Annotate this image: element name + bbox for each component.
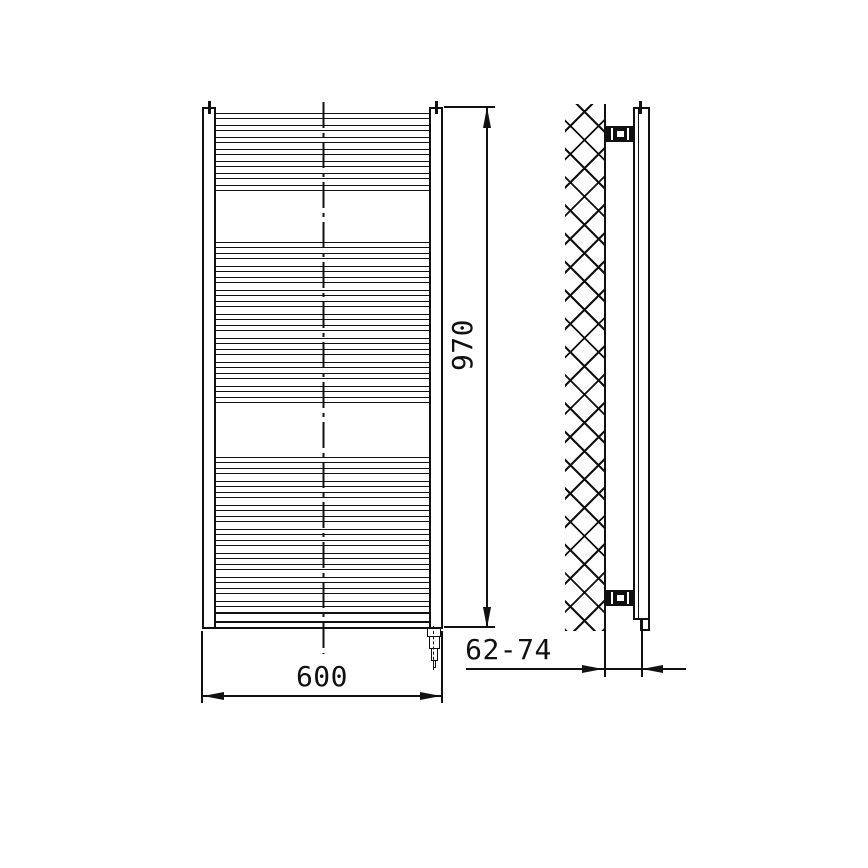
side-view-tube — [633, 107, 650, 620]
wall-bracket-bottom — [606, 590, 633, 606]
element-axis-dash — [433, 626, 434, 670]
depth-dim-label: 62-74 — [448, 636, 569, 664]
wall-bracket-top — [606, 126, 633, 142]
vent-plug-right-icon — [435, 101, 438, 114]
height-dim-label: 970 — [449, 305, 477, 385]
arrowhead-down-icon — [483, 607, 491, 628]
arrowhead-up-icon — [483, 107, 491, 128]
left-collector-tube — [202, 107, 216, 629]
side-tube-inner-line — [638, 109, 640, 618]
width-dim-line — [202, 695, 443, 697]
center-axis-line — [321, 102, 326, 654]
front-view — [202, 107, 443, 629]
arrowhead-right-icon — [582, 665, 603, 673]
width-dim-label: 600 — [282, 663, 362, 691]
arrowhead-right-icon — [420, 692, 441, 700]
arrowhead-left-icon — [642, 665, 663, 673]
arrowhead-left-icon — [203, 692, 224, 700]
wall-hatching — [565, 104, 604, 631]
radiator-technical-drawing: 970 600 62-74 — [0, 0, 868, 868]
right-collector-tube — [429, 107, 443, 629]
vent-plug-left-icon — [208, 101, 211, 114]
width-dim-extension-right — [441, 631, 443, 703]
vent-plug-side-icon — [639, 101, 642, 114]
height-dim-line — [486, 107, 488, 628]
